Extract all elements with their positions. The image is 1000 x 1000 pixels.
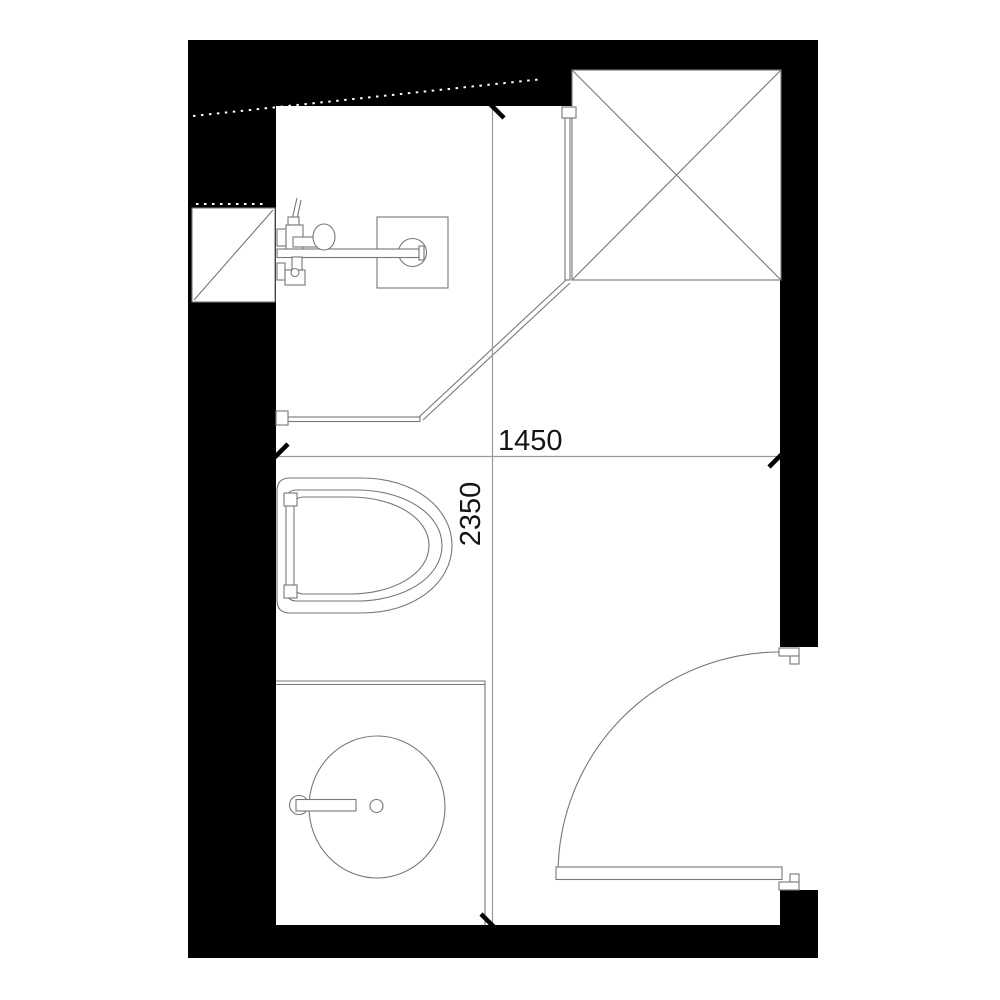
glass-vertical-pane [565,118,570,280]
dim-label-width: 1450 [498,425,563,457]
wall-hung-toilet [277,478,452,613]
wall-left [188,40,276,925]
shower-arm [277,249,419,258]
glass-diagonal-pane-edge2 [423,283,570,420]
mixer-handle-base [288,217,299,225]
swing-door [556,648,799,890]
round-washbasin [290,736,446,878]
glass-top-cap [562,107,576,118]
bathroom-floor-plan: 1450 2350 [0,0,1000,1000]
shower-arm-end-cap [419,246,424,260]
door-stop-top-a [779,648,799,656]
door-leaf [556,867,782,880]
basin-tap-spout [296,800,356,812]
wall-right-lower [780,890,818,958]
plan-drawing: 1450 2350 [0,0,1000,1000]
glass-left-cap [276,411,288,425]
toilet-hinge-lower [284,585,297,598]
door-stop-bottom-a [790,874,799,882]
shower-glass-panel [276,107,576,425]
shower-mixer [277,198,424,285]
crossed-shaft-box [572,70,781,280]
dim-label-height: 2350 [455,482,487,547]
glass-horizontal-pane [288,417,420,422]
wall-right-upper [780,40,818,647]
hand-shower-head [313,224,335,250]
duct-shaft-box [192,208,275,302]
basin-drain [370,800,383,813]
mixer-wall-bracket-lower [277,263,285,280]
door-stop-bottom-b [779,882,799,890]
wall-bottom [188,925,818,958]
dimension-vertical: 2350 [455,95,504,937]
mixer-wall-bracket-upper [277,229,286,246]
toilet-hinge-upper [284,493,297,506]
wall-top-right-thin [572,40,782,70]
door-swing-arc [558,652,780,874]
mixer-knob [291,269,299,277]
door-stop-top-b [790,656,799,664]
dimension-horizontal: 1450 [265,425,792,467]
mixer-stem [292,257,302,270]
